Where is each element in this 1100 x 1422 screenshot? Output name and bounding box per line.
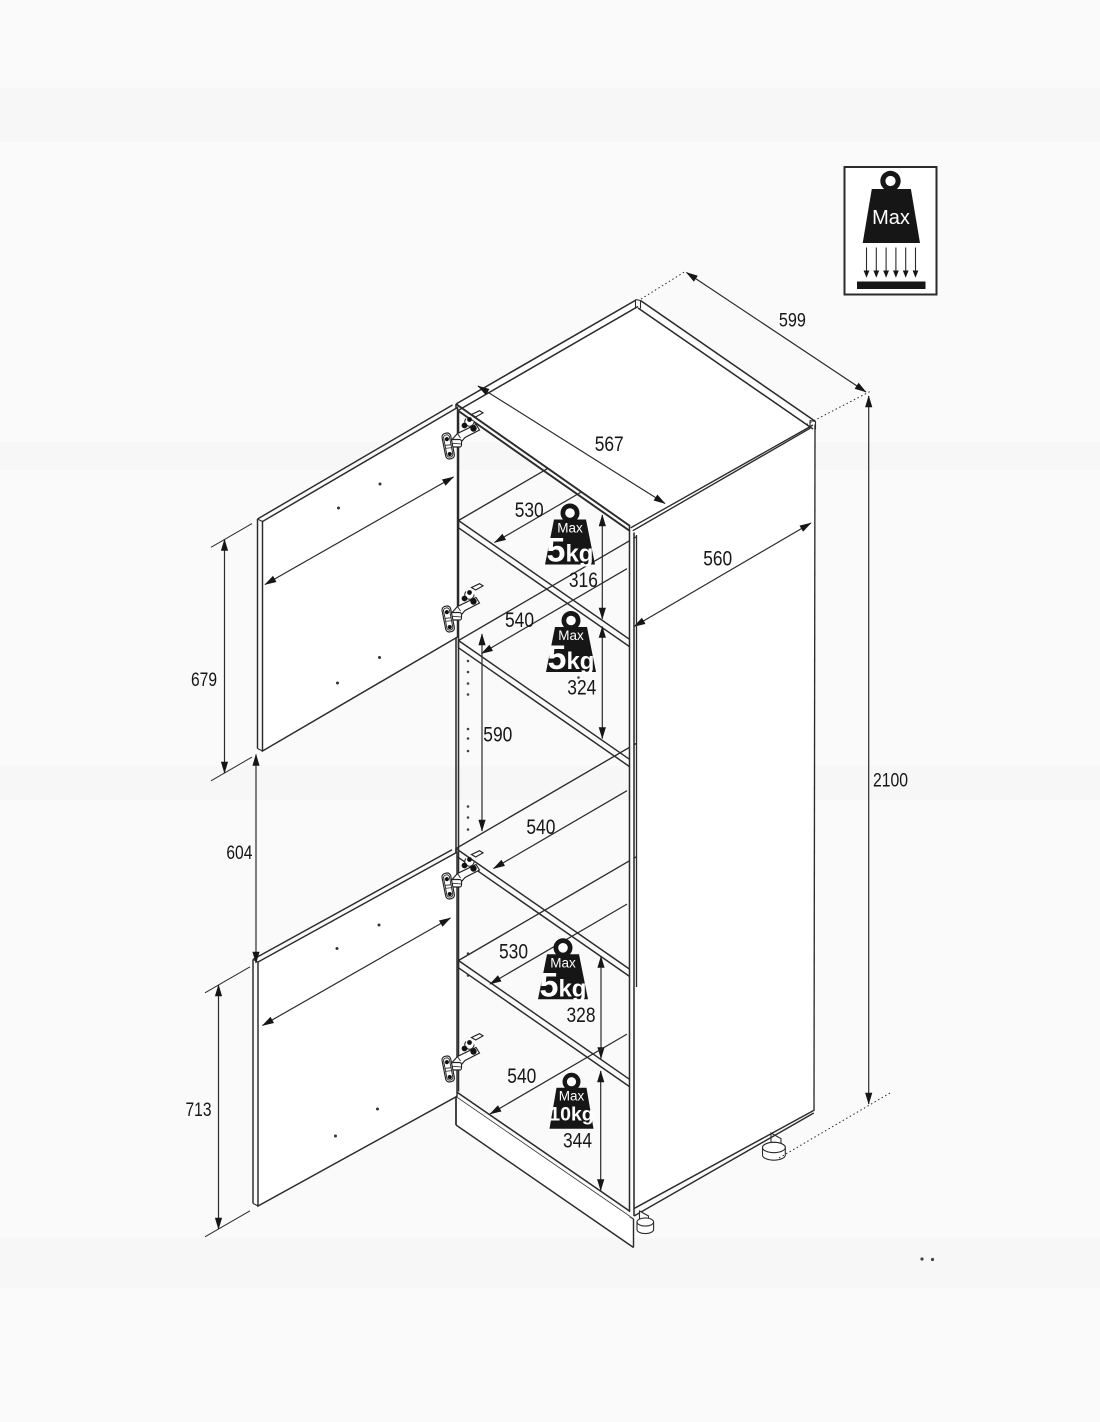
svg-text:604: 604 bbox=[226, 843, 252, 864]
svg-text:Max: Max bbox=[872, 207, 910, 229]
svg-text:324: 324 bbox=[567, 677, 596, 700]
svg-text:567: 567 bbox=[595, 433, 624, 456]
svg-text:10kg: 10kg bbox=[549, 1104, 593, 1126]
svg-text:540: 540 bbox=[526, 816, 555, 839]
svg-text:560: 560 bbox=[703, 548, 732, 571]
svg-text:344: 344 bbox=[563, 1130, 592, 1153]
svg-text:540: 540 bbox=[505, 609, 534, 632]
svg-text:530: 530 bbox=[515, 499, 544, 522]
svg-text:679: 679 bbox=[191, 670, 217, 691]
svg-text:2100: 2100 bbox=[873, 771, 908, 792]
svg-text:713: 713 bbox=[186, 1100, 212, 1121]
svg-text:530: 530 bbox=[499, 941, 528, 964]
svg-text:590: 590 bbox=[483, 724, 512, 747]
svg-text:328: 328 bbox=[567, 1004, 596, 1027]
svg-text:540: 540 bbox=[507, 1065, 536, 1088]
svg-text:Max: Max bbox=[559, 1089, 585, 1104]
svg-text:599: 599 bbox=[779, 311, 806, 332]
